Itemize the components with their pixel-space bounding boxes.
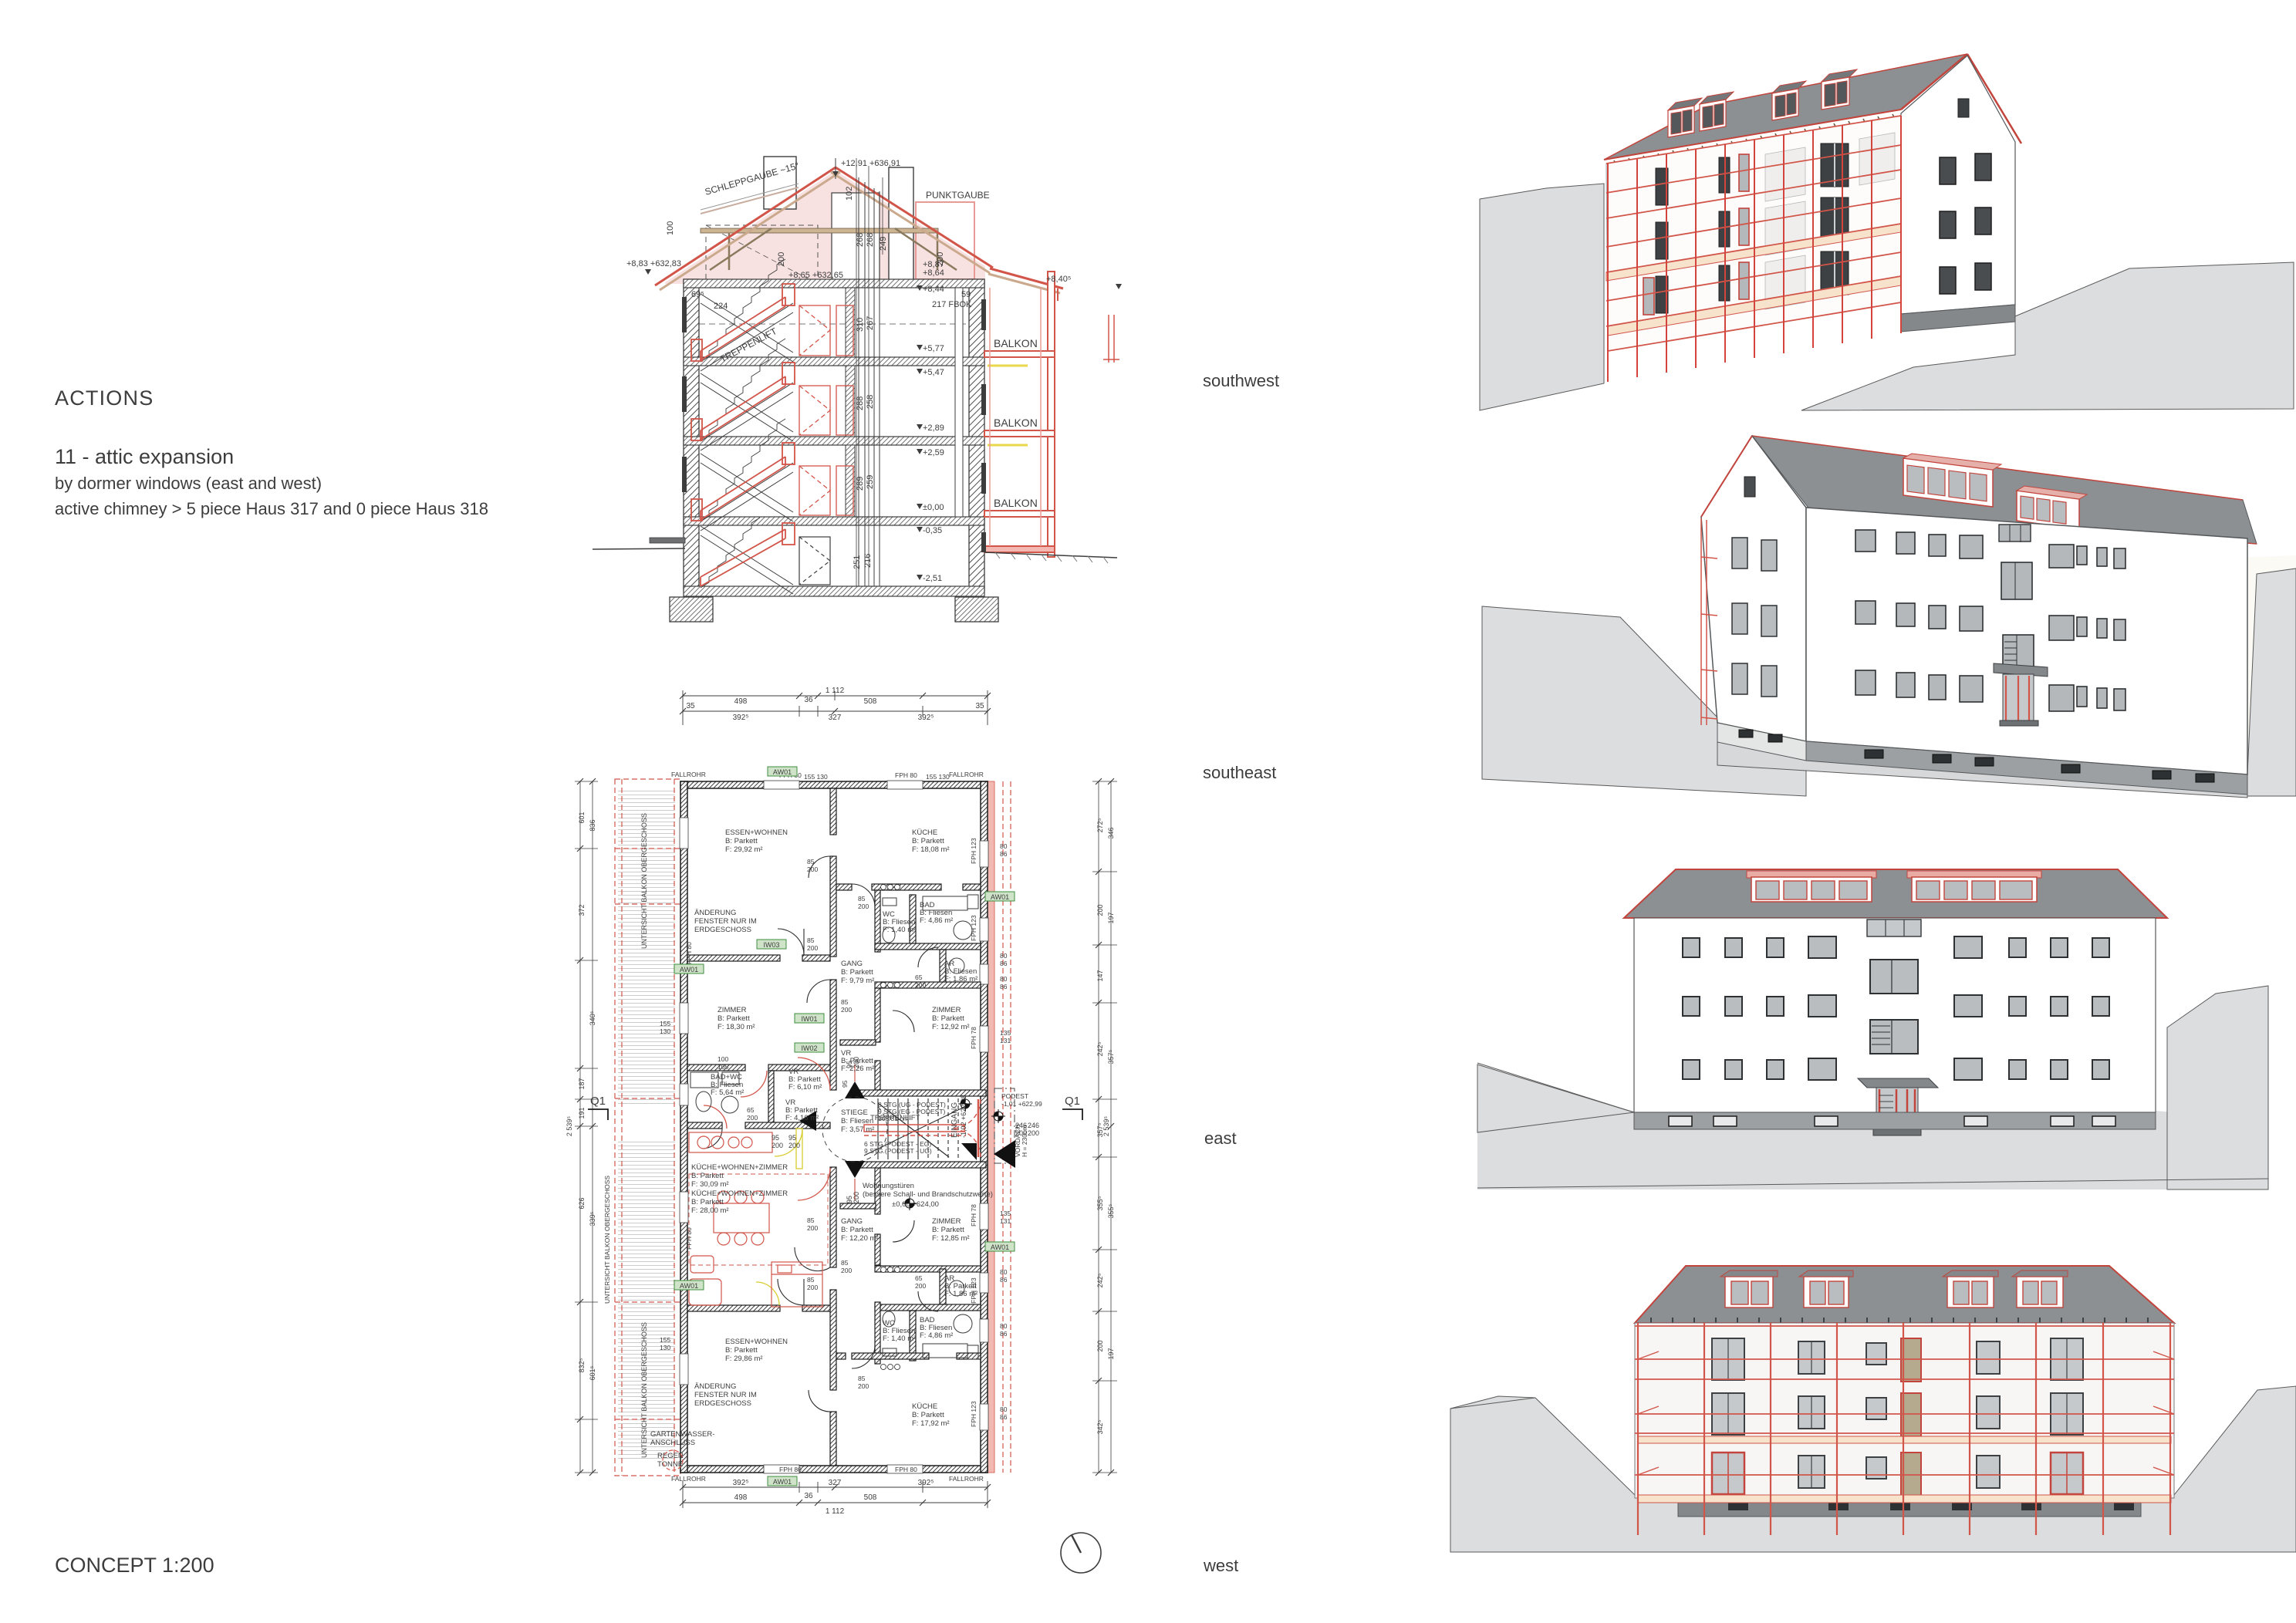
svg-text:836: 836: [589, 819, 596, 831]
svg-text:AW01: AW01: [773, 768, 792, 776]
svg-text:FPH 80: FPH 80: [685, 1227, 693, 1250]
svg-text:FALLROHR: FALLROHR: [949, 771, 984, 778]
svg-text:200: 200: [858, 903, 869, 910]
svg-text:FALLROHR: FALLROHR: [949, 1475, 984, 1483]
svg-text:65: 65: [915, 1274, 923, 1282]
svg-text:310: 310: [856, 318, 865, 332]
svg-text:392⁵: 392⁵: [733, 714, 749, 722]
svg-text:B: Parkett: B: Parkett: [841, 1226, 873, 1234]
svg-text:95: 95: [788, 1134, 796, 1142]
svg-text:ANSCHLUSS: ANSCHLUSS: [650, 1439, 695, 1447]
svg-text:+5,47: +5,47: [923, 368, 944, 377]
svg-text:498: 498: [734, 697, 748, 706]
svg-text:272⁵: 272⁵: [1096, 818, 1104, 832]
svg-text:508: 508: [864, 1493, 877, 1502]
svg-text:PUNKTGAUBE: PUNKTGAUBE: [926, 190, 990, 201]
svg-text:Q1: Q1: [1065, 1095, 1080, 1108]
svg-text:BALKON: BALKON: [994, 417, 1038, 429]
svg-text:36: 36: [804, 1492, 813, 1500]
svg-text:80: 80: [1000, 1322, 1008, 1330]
svg-text:200: 200: [853, 1192, 860, 1203]
svg-text:B: Parkett: B: Parkett: [932, 1226, 964, 1234]
svg-text:355⁵: 355⁵: [1107, 1203, 1115, 1218]
svg-text:601: 601: [578, 811, 586, 823]
svg-text:F: 4,86 m²: F: 4,86 m²: [920, 916, 953, 925]
svg-text:Q1: Q1: [590, 1095, 606, 1108]
svg-text:KÜCHE: KÜCHE: [912, 1402, 937, 1411]
svg-text:F: 17,92 m²: F: 17,92 m²: [912, 1419, 950, 1428]
svg-text:FPH 78: FPH 78: [970, 1204, 977, 1227]
svg-text:±0,00 +624,00: ±0,00 +624,00: [892, 1200, 939, 1209]
svg-text:339⁵: 339⁵: [589, 1211, 596, 1226]
svg-text:200: 200: [1096, 1340, 1104, 1351]
svg-text:AW01: AW01: [773, 1478, 792, 1486]
svg-text:251: 251: [853, 555, 862, 569]
svg-text:+2,89: +2,89: [923, 423, 944, 433]
svg-text:FPH 80: FPH 80: [895, 771, 917, 779]
svg-text:ERDGESCHOSS: ERDGESCHOSS: [694, 926, 751, 934]
svg-text:1 112: 1 112: [826, 687, 845, 695]
svg-text:327: 327: [829, 1479, 842, 1487]
svg-text:200: 200: [853, 1057, 860, 1068]
svg-text:F: 3,57 m²: F: 3,57 m²: [841, 1125, 874, 1134]
svg-text:200: 200: [841, 1267, 852, 1274]
svg-text:340⁵: 340⁵: [589, 1011, 596, 1025]
svg-text:289: 289: [856, 477, 865, 491]
svg-text:258: 258: [866, 395, 875, 409]
svg-text:-0,35: -0,35: [923, 526, 942, 535]
svg-text:85: 85: [807, 936, 815, 944]
svg-text:155: 155: [660, 1336, 670, 1344]
svg-text:F: 6,10 m²: F: 6,10 m²: [788, 1083, 822, 1092]
svg-text:B: Parkett: B: Parkett: [725, 837, 758, 845]
svg-text:KÜCHE+WOHNEN+ZIMMER: KÜCHE+WOHNEN+ZIMMER: [691, 1163, 788, 1172]
svg-text:216: 216: [863, 554, 873, 568]
svg-text:B: Parkett: B: Parkett: [932, 1014, 964, 1023]
svg-text:F: 9,79 m²: F: 9,79 m²: [841, 977, 874, 985]
svg-text:ERDGESCHOSS: ERDGESCHOSS: [694, 1399, 751, 1408]
svg-text:B: Parkett: B: Parkett: [717, 1014, 750, 1023]
svg-text:FPH 80: FPH 80: [895, 1466, 917, 1473]
svg-text:135: 135: [1000, 1029, 1011, 1037]
svg-text:327: 327: [829, 714, 842, 722]
svg-text:FPH 123: FPH 123: [970, 915, 977, 941]
svg-text:KÜCHE: KÜCHE: [912, 828, 937, 837]
svg-text:F: 4,16 m²: F: 4,16 m²: [785, 1114, 819, 1122]
svg-text:200: 200: [915, 981, 926, 989]
svg-text:392⁵: 392⁵: [733, 1479, 749, 1487]
svg-text:FPH 80: FPH 80: [685, 942, 693, 964]
svg-text:FPH 80: FPH 80: [779, 1466, 802, 1473]
svg-text:191: 191: [578, 1107, 586, 1119]
svg-text:FENSTER NUR IM: FENSTER NUR IM: [694, 917, 757, 926]
svg-text:135: 135: [1000, 1210, 1011, 1217]
svg-text:200: 200: [915, 1282, 926, 1290]
svg-text:100: 100: [666, 221, 675, 235]
svg-text:102: 102: [845, 187, 854, 201]
svg-text:F: 29,92 m²: F: 29,92 m²: [725, 845, 763, 854]
svg-text:+12,91 +636,91: +12,91 +636,91: [841, 159, 900, 168]
svg-text:Wohnungstüren: Wohnungstüren: [863, 1182, 914, 1190]
svg-text:131: 131: [1000, 1217, 1011, 1225]
svg-text:ESSEN+WOHNEN: ESSEN+WOHNEN: [725, 1338, 788, 1346]
svg-text:80: 80: [1000, 952, 1008, 960]
svg-text:601⁵: 601⁵: [589, 1365, 596, 1380]
svg-text:80: 80: [1000, 1268, 1008, 1276]
svg-text:REGEN: REGEN: [657, 1452, 684, 1460]
svg-text:FPH 78: FPH 78: [970, 1027, 977, 1049]
svg-text:B: Fliesen: B: Fliesen: [841, 1117, 873, 1125]
svg-text:80: 80: [1000, 1405, 1008, 1413]
svg-text:F: 1,40 m²: F: 1,40 m²: [883, 1335, 916, 1343]
svg-text:ÄNDERUNG: ÄNDERUNG: [694, 1382, 736, 1391]
svg-text:268: 268: [866, 233, 875, 247]
svg-text:200: 200: [777, 252, 786, 266]
svg-text:BALKON: BALKON: [994, 337, 1038, 349]
svg-text:STIEGE: STIEGE: [841, 1108, 868, 1117]
svg-text:F: 1,40 m²: F: 1,40 m²: [883, 926, 916, 934]
svg-text:86: 86: [1000, 850, 1008, 858]
svg-text:F: 12,85 m²: F: 12,85 m²: [932, 1234, 970, 1243]
svg-text:35: 35: [975, 702, 984, 710]
svg-text:65: 65: [915, 973, 923, 981]
svg-text:147: 147: [1096, 970, 1104, 981]
svg-text:9 STG.(PODEST - UG): 9 STG.(PODEST - UG): [864, 1147, 932, 1155]
svg-text:ZIMMER: ZIMMER: [717, 1006, 747, 1014]
svg-text:TONNE: TONNE: [657, 1460, 683, 1469]
svg-text:155: 155: [660, 1020, 670, 1027]
svg-text:+8,44: +8,44: [923, 285, 944, 294]
svg-text:80: 80: [1000, 842, 1008, 850]
svg-text:F: 30,09 m²: F: 30,09 m²: [691, 1180, 729, 1189]
svg-text:200: 200: [807, 1284, 818, 1291]
svg-text:197: 197: [1107, 912, 1115, 923]
svg-text:IW01: IW01: [801, 1015, 817, 1023]
svg-text:FPH 123: FPH 123: [970, 1277, 977, 1304]
svg-text:392⁵: 392⁵: [918, 714, 934, 722]
svg-text:86: 86: [1000, 1276, 1008, 1284]
svg-text:GANG: GANG: [841, 960, 863, 968]
svg-text:95: 95: [841, 1080, 849, 1088]
svg-text:F: 12,20 m²: F: 12,20 m²: [841, 1234, 879, 1243]
svg-text:F: 12,92 m²: F: 12,92 m²: [932, 1023, 970, 1031]
svg-text:2 539⁵: 2 539⁵: [566, 1116, 573, 1137]
svg-text:95: 95: [772, 1134, 779, 1142]
svg-text:130: 130: [660, 1027, 670, 1035]
svg-text:(bessere Schall- und Brandschu: (bessere Schall- und Brandschutzwerte): [863, 1190, 993, 1199]
svg-text:259: 259: [866, 475, 875, 489]
svg-text:249: 249: [879, 237, 888, 251]
svg-text:36: 36: [804, 696, 813, 704]
svg-text:B: Parkett: B: Parkett: [912, 1411, 944, 1419]
svg-text:F: 5,64 m²: F: 5,64 m²: [711, 1088, 744, 1097]
svg-text:GANG: GANG: [841, 1217, 863, 1226]
svg-text:268: 268: [856, 233, 865, 247]
svg-text:288: 288: [856, 396, 865, 410]
svg-text:F: 1,86 m²: F: 1,86 m²: [944, 975, 977, 984]
svg-text:+8,83 +632,83: +8,83 +632,83: [626, 259, 681, 268]
svg-text:372: 372: [578, 904, 586, 916]
svg-text:B: Parkett: B: Parkett: [841, 968, 873, 977]
svg-text:ZIMMER: ZIMMER: [932, 1217, 961, 1226]
svg-text:200: 200: [841, 1006, 852, 1014]
svg-text:±0,00: ±0,00: [923, 503, 944, 512]
svg-text:ZIMMER: ZIMMER: [932, 1006, 961, 1014]
svg-text:224: 224: [714, 302, 728, 311]
svg-text:155 130: 155 130: [926, 773, 950, 781]
svg-text:BALKON: BALKON: [994, 497, 1038, 509]
svg-text:200: 200: [807, 944, 818, 952]
svg-text:200: 200: [807, 1224, 818, 1232]
svg-text:IW03: IW03: [763, 941, 779, 949]
svg-text:200: 200: [936, 252, 945, 266]
svg-text:86: 86: [1000, 1330, 1008, 1338]
svg-text:F: 18,30 m²: F: 18,30 m²: [717, 1023, 755, 1031]
svg-text:200: 200: [788, 1142, 800, 1149]
svg-text:2 539⁵: 2 539⁵: [1102, 1116, 1110, 1137]
svg-text:498: 498: [734, 1493, 748, 1502]
svg-text:UNTERSICHT BALKON OBERGESCHOSS: UNTERSICHT BALKON OBERGESCHOSS: [640, 1322, 648, 1458]
svg-text:FALLROHR: FALLROHR: [671, 771, 706, 778]
svg-text:392⁵: 392⁵: [918, 1479, 934, 1487]
svg-text:267: 267: [866, 316, 875, 330]
svg-text:200: 200: [807, 865, 818, 873]
svg-text:F: 4,86 m²: F: 4,86 m²: [920, 1331, 953, 1340]
svg-text:35: 35: [686, 702, 695, 710]
svg-text:85: 85: [807, 1276, 815, 1284]
svg-text:197: 197: [1107, 1348, 1115, 1359]
svg-text:AW01: AW01: [680, 966, 698, 973]
svg-text:B: Parkett: B: Parkett: [912, 837, 944, 845]
svg-text:PODEST: PODEST: [1001, 1092, 1028, 1100]
svg-text:-2,51: -2,51: [923, 574, 942, 583]
svg-text:B: Parkett: B: Parkett: [691, 1198, 724, 1206]
svg-text:346: 346: [1107, 827, 1115, 838]
svg-text:130: 130: [660, 1344, 670, 1351]
svg-text:FENSTER NUR IM: FENSTER NUR IM: [694, 1391, 757, 1399]
svg-text:AW01: AW01: [680, 1282, 698, 1290]
svg-text:100: 100: [717, 1055, 728, 1063]
svg-text:200: 200: [1096, 904, 1104, 916]
svg-text:85: 85: [841, 998, 849, 1006]
svg-text:+8,64: +8,64: [923, 268, 944, 278]
svg-text:IW02: IW02: [801, 1044, 817, 1052]
svg-text:65: 65: [747, 1106, 755, 1114]
svg-text:+8,40⁵: +8,40⁵: [1046, 275, 1071, 284]
svg-text:217 FBOK: 217 FBOK: [932, 300, 972, 309]
svg-text:85: 85: [807, 858, 815, 865]
svg-text:200: 200: [1015, 1129, 1027, 1137]
svg-text:200: 200: [772, 1142, 783, 1149]
svg-text:85: 85: [858, 1375, 866, 1382]
svg-text:AW01: AW01: [991, 893, 1009, 901]
svg-text:242⁵: 242⁵: [1096, 1041, 1104, 1056]
svg-text:85: 85: [858, 895, 866, 903]
svg-text:200: 200: [1028, 1129, 1039, 1137]
svg-text:F: 28,00 m²: F: 28,00 m²: [691, 1206, 729, 1215]
svg-text:80: 80: [1000, 975, 1008, 983]
svg-text:69⁵: 69⁵: [691, 290, 704, 299]
svg-text:EINGANG: EINGANG: [950, 1102, 959, 1138]
svg-text:85: 85: [841, 1259, 849, 1267]
svg-text:355⁵: 355⁵: [1096, 1196, 1104, 1210]
svg-text:59: 59: [961, 290, 971, 299]
svg-text:246: 246: [1015, 1122, 1027, 1129]
svg-text:200: 200: [747, 1114, 758, 1122]
svg-text:+5,77: +5,77: [923, 344, 944, 353]
svg-text:342⁵: 342⁵: [1096, 1419, 1104, 1434]
svg-text:105: 105: [717, 1063, 728, 1071]
svg-text:86: 86: [1000, 983, 1008, 990]
svg-text:246: 246: [1028, 1122, 1039, 1129]
svg-text:KÜCHE+WOHNEN+ZIMMER: KÜCHE+WOHNEN+ZIMMER: [691, 1189, 788, 1198]
svg-text:187: 187: [578, 1078, 586, 1089]
svg-text:85: 85: [807, 1216, 815, 1224]
svg-text:86: 86: [1000, 960, 1008, 967]
svg-text:357⁵: 357⁵: [1107, 1049, 1115, 1064]
svg-text:F: 29,86 m²: F: 29,86 m²: [725, 1355, 763, 1363]
svg-text:508: 508: [864, 697, 877, 706]
svg-text:AW01: AW01: [991, 1243, 1009, 1251]
svg-text:626: 626: [578, 1197, 586, 1209]
svg-text:1 112: 1 112: [826, 1507, 845, 1516]
svg-text:B: Parkett: B: Parkett: [691, 1172, 724, 1180]
svg-text:ESSEN+WOHNEN: ESSEN+WOHNEN: [725, 828, 788, 837]
svg-text:FPH 123: FPH 123: [970, 1401, 977, 1427]
svg-text:F: 18,08 m²: F: 18,08 m²: [912, 845, 950, 854]
svg-text:ÄNDERUNG: ÄNDERUNG: [694, 909, 736, 917]
svg-text:200: 200: [858, 1382, 869, 1390]
svg-text:FALLROHR: FALLROHR: [671, 1475, 706, 1483]
svg-text:832⁵: 832⁵: [578, 1358, 586, 1372]
svg-text:155 130: 155 130: [804, 773, 828, 781]
svg-text:-1,01 +622,99: -1,01 +622,99: [1001, 1100, 1042, 1108]
svg-text:86: 86: [1000, 1413, 1008, 1421]
svg-text:UNTERSICHT BALKON OBERGESCHOSS: UNTERSICHT BALKON OBERGESCHOSS: [640, 813, 648, 949]
svg-text:B: Parkett: B: Parkett: [725, 1346, 758, 1355]
svg-text:GARTENWASSER-: GARTENWASSER-: [650, 1430, 714, 1439]
svg-text:131: 131: [1000, 1037, 1011, 1044]
svg-text:FPH 123: FPH 123: [970, 838, 977, 864]
svg-text:242⁵: 242⁵: [1096, 1273, 1104, 1287]
svg-text:TREPPENLIFT: TREPPENLIFT: [870, 1114, 920, 1122]
svg-text:UNTERSICHT BALKON OBERGESCHOSS: UNTERSICHT BALKON OBERGESCHOSS: [603, 1176, 611, 1304]
svg-text:+2,59: +2,59: [923, 448, 944, 457]
svg-text:+8,65 +632,65: +8,65 +632,65: [788, 271, 843, 280]
